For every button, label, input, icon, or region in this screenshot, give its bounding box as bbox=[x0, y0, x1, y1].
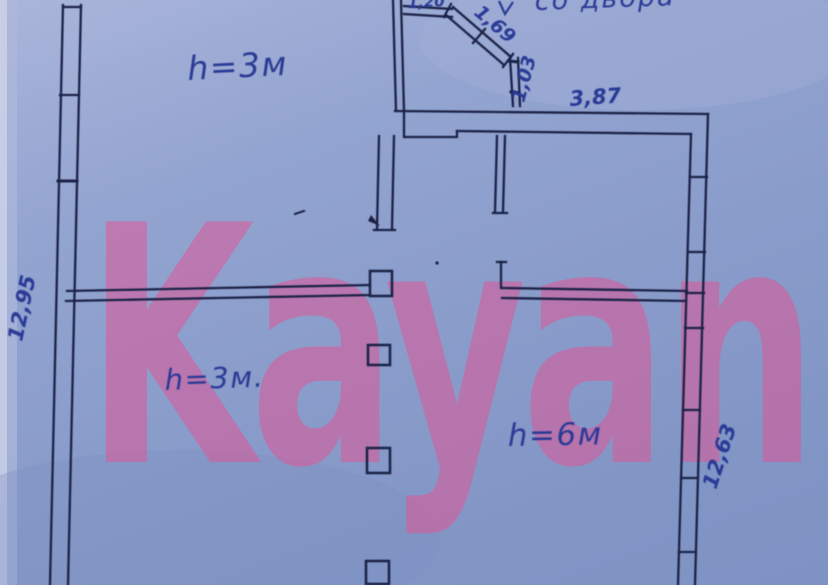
center-wall-upper bbox=[393, 0, 404, 111]
wall-line bbox=[393, 0, 396, 111]
floor-plan-drawing: Kayan bbox=[0, 0, 828, 585]
dimension-entry-top: 1,20 bbox=[407, 0, 445, 12]
wall-line bbox=[395, 111, 708, 114]
dimension-top-wall: 3,87 bbox=[569, 83, 623, 111]
wall-line bbox=[457, 131, 691, 134]
top-wall-band bbox=[395, 111, 708, 137]
wall-notch bbox=[404, 112, 457, 137]
ink-speck bbox=[435, 261, 438, 264]
wall-line bbox=[401, 0, 404, 111]
room-height-label-top-left: h=3м bbox=[186, 44, 288, 88]
room-height-label-bottom-left: h=3м. bbox=[164, 360, 265, 397]
floor-plan-scan: Kayan bbox=[0, 0, 828, 585]
room-height-label-right: h=6м bbox=[508, 416, 603, 454]
